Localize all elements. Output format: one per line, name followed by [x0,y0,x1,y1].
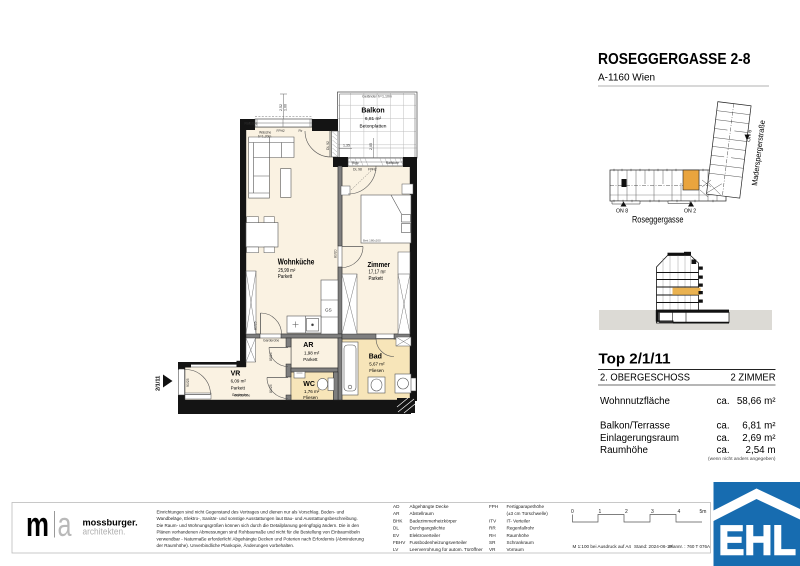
svg-text:Geländer h=1,10m: Geländer h=1,10m [362,95,392,99]
svg-text:Raffstore: Raffstore [386,161,399,165]
svg-text:Abgehängte Decke: Abgehängte Decke [410,504,450,509]
svg-text:6,81 m²: 6,81 m² [742,421,776,432]
svg-text:17,17 m²: 17,17 m² [369,270,386,276]
svg-text:ROSEGGERGASSE 2-8: ROSEGGERGASSE 2-8 [598,51,751,68]
svg-text:a: a [58,506,72,544]
svg-text:Einrichtungen sind nicht Gegen: Einrichtungen sind nicht Gegenstand des … [157,509,345,514]
svg-text:0: 0 [571,509,574,515]
svg-text:verwendbar - Naturmaße erforde: verwendbar - Naturmaße erforderlich! Abg… [157,536,365,541]
svg-text:Wohnküche: Wohnküche [278,258,315,267]
svg-text:1: 1 [599,509,602,515]
svg-text:2 ZIMMER: 2 ZIMMER [731,372,776,383]
svg-text:ON 8: ON 8 [616,209,628,215]
svg-text:GS: GS [325,308,332,313]
svg-text:1,35: 1,35 [343,144,350,148]
svg-text:80/25: 80/25 [269,384,273,393]
svg-text:FPH2: FPH2 [277,129,285,133]
svg-text:FPH2: FPH2 [368,168,377,172]
svg-text:Schrankraum: Schrankraum [507,540,534,545]
svg-text:AR: AR [303,342,313,349]
svg-text:Bett 180x200: Bett 180x200 [363,239,381,243]
svg-text:Fliesen: Fliesen [369,368,384,373]
svg-text:Fussbodenheizungsverteiler: Fussbodenheizungsverteiler [410,540,468,545]
svg-text:ITV: ITV [489,518,497,523]
svg-text:90/25: 90/25 [186,378,190,387]
svg-text:M 1:100 bei Ausdruck auf A4: M 1:100 bei Ausdruck auf A4 [573,544,632,549]
svg-text:Plannr. : 760 T 076A: Plannr. : 760 T 076A [669,544,711,549]
svg-text:Roseggergasse: Roseggergasse [632,215,684,225]
svg-text:Durchgangslichte: Durchgangslichte [410,526,446,531]
svg-text:Parkett: Parkett [231,386,246,391]
svg-text:5m: 5m [700,509,707,515]
svg-text:Zimmer: Zimmer [368,260,391,269]
svg-text:2,05: 2,05 [369,143,373,150]
svg-text:FBHV: FBHV [393,540,406,545]
svg-text:Wohnnutzfläche: Wohnnutzfläche [600,396,671,407]
svg-text:A-1160 Wien: A-1160 Wien [598,73,655,84]
svg-text:m: m [26,506,49,544]
svg-text:Rigo: Rigo [352,161,359,165]
svg-text:ca.: ca. [717,421,730,432]
svg-text:Stand: 2024-06-19: Stand: 2024-06-19 [634,544,673,549]
svg-text:(wenn nicht anders angegeben): (wenn nicht anders angegeben) [708,456,776,462]
svg-text:2,52: 2,52 [279,104,283,111]
svg-text:b=1,20m: b=1,20m [258,134,271,138]
svg-text:EHL: EHL [719,517,797,564]
svg-text:80/20: 80/20 [334,249,338,258]
svg-text:Wandbeläge, Elektro-, Sanitär-: Wandbeläge, Elektro-, Sanitär- und sonst… [157,516,358,521]
svg-text:ca.: ca. [717,445,730,456]
svg-text:6,09 m²: 6,09 m² [231,379,247,384]
svg-text:Betonplatten: Betonplatten [360,124,387,130]
svg-text:4: 4 [678,509,681,515]
svg-text:Elektroverteiler: Elektroverteiler [410,533,441,538]
svg-text:WC: WC [303,381,315,388]
svg-text:ca.: ca. [717,433,730,444]
svg-text:RH: RH [489,533,496,538]
svg-text:85/25: 85/25 [269,352,273,361]
svg-text:EV: EV [393,533,400,538]
svg-text:Badezimmerheizkörper: Badezimmerheizkörper [410,518,458,523]
svg-text:der Raumhöhe). Unverbindliche: der Raumhöhe). Unverbindliche Plankopie,… [157,542,295,548]
svg-text:ca.: ca. [717,396,730,407]
svg-text:Raffstore: Raffstore [245,122,258,126]
svg-text:SR: SR [489,540,496,545]
svg-text:DL 92: DL 92 [326,141,330,150]
svg-text:Vorraum: Vorraum [507,547,525,552]
svg-text:Raumhöhe: Raumhöhe [507,533,530,538]
svg-text:VR: VR [231,371,241,378]
svg-text:1,76 m²: 1,76 m² [304,389,320,394]
svg-text:Einlagerungsraum: Einlagerungsraum [600,433,679,444]
svg-text:80/25: 80/25 [254,321,258,330]
svg-text:architekten.: architekten. [83,527,126,537]
svg-text:Fertigparapethöhe: Fertigparapethöhe [507,504,545,509]
svg-text:AR: AR [393,511,400,516]
svg-text:Garderobe: Garderobe [263,338,279,342]
svg-text:58,66 m²: 58,66 m² [737,396,776,407]
svg-text:DL: DL [393,526,399,531]
svg-text:Abstellraum: Abstellraum [410,511,434,516]
svg-text:Die Raum- und Wohnungsgrößen k: Die Raum- und Wohnungsgrößen können sich… [157,523,360,528]
svg-text:2,54 m: 2,54 m [746,445,776,456]
svg-text:Parkett: Parkett [278,274,293,280]
svg-text:6,81 m²: 6,81 m² [365,116,382,122]
svg-text:DL 98: DL 98 [353,168,362,172]
svg-text:Parkett: Parkett [303,357,318,362]
svg-text:Parkett: Parkett [369,276,384,282]
svg-text:Regenfallrohr: Regenfallrohr [507,526,535,531]
svg-text:Raumhöhe: Raumhöhe [600,445,649,456]
svg-text:FPH: FPH [489,504,498,509]
svg-text:Balkon/Terrasse: Balkon/Terrasse [600,421,671,432]
svg-text:Balkon: Balkon [361,108,384,115]
svg-text:RR: RR [489,526,496,531]
svg-text:ON 2: ON 2 [684,209,696,215]
svg-text:(±3 cm Türschwelle): (±3 cm Türschwelle) [507,511,549,516]
svg-text:VR: VR [489,547,496,552]
svg-text:2/1/11: 2/1/11 [156,376,162,391]
svg-text:2,69 m²: 2,69 m² [742,433,776,444]
svg-text:1,98 m²: 1,98 m² [304,351,320,356]
svg-text:5,67 m²: 5,67 m² [369,361,385,366]
svg-text:2: 2 [625,509,628,515]
svg-text:IT- Verteiler: IT- Verteiler [507,518,531,523]
svg-text:Garderobe: Garderobe [234,394,250,398]
svg-text:Fliesen: Fliesen [303,395,318,400]
svg-text:Top 2/1/11: Top 2/1/11 [599,351,672,368]
svg-text:Plänen vorhandenen Abmessungen: Plänen vorhandenen Abmessungen sind Rohb… [157,530,361,535]
svg-text:1,00: 1,00 [284,104,288,111]
svg-text:Leerverrohrung für autom. Türö: Leerverrohrung für autom. Türöffner [410,547,484,552]
svg-text:AD: AD [393,504,400,509]
svg-text:Bad: Bad [369,354,382,361]
svg-text:3: 3 [651,509,654,515]
svg-text:2. OBERGESCHOSS: 2. OBERGESCHOSS [600,372,690,383]
svg-text:BHK: BHK [393,518,403,523]
svg-text:25,99 m²: 25,99 m² [278,268,295,274]
